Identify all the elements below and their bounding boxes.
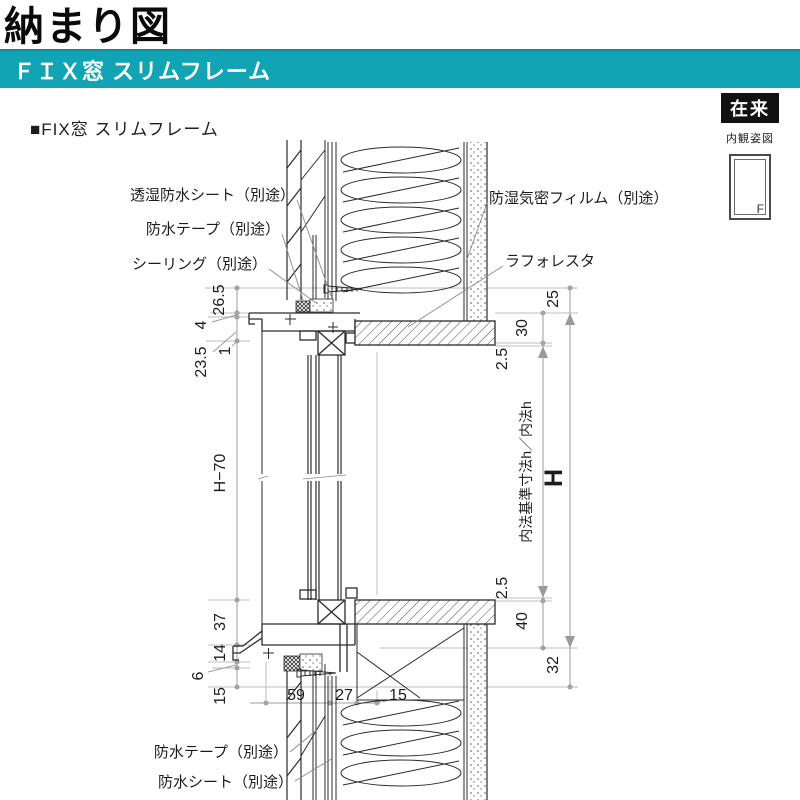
dim-27: 27 <box>335 687 353 704</box>
construction-type-badge: 在来 <box>721 93 779 123</box>
label-vapor-barrier-film: 防湿気密フィルム（別途） <box>489 190 668 207</box>
dim-15-left: 15 <box>212 687 229 705</box>
dim-59: 59 <box>287 687 305 704</box>
subsection-title: ■FIX窓 スリムフレーム <box>30 115 219 140</box>
section-drawing: 透湿防水シート（別途） 防水テープ（別途） シーリング（別途） 防湿気密フィルム… <box>0 140 800 800</box>
dimension-labels-right: 25 30 2.5 内法基準寸法h／内法h H 2.5 40 32 <box>494 290 568 674</box>
dim-h: H <box>540 469 568 487</box>
dim-23-5: 23.5 <box>193 346 210 377</box>
insulation-batt-bottom <box>341 700 461 786</box>
label-waterproof-tape-bottom: 防水テープ（別途） <box>154 744 288 761</box>
label-breathable-waterproof-sheet: 透湿防水シート（別途） <box>130 187 295 204</box>
dim-4: 4 <box>193 320 210 329</box>
dim-2-5-top: 2.5 <box>494 348 511 370</box>
dim-26-5: 26.5 <box>211 284 228 315</box>
insulation-batt-top <box>341 147 461 293</box>
window-head-frame <box>249 313 360 355</box>
label-waterproof-tape-top: 防水テープ（別途） <box>146 221 280 238</box>
dim-1: 1 <box>217 346 234 355</box>
dimension-labels-left: 26.5 4 1 23.5 H−70 37 14 6 15 <box>190 284 234 705</box>
sill-casing <box>355 600 495 624</box>
dim-h-minus-70: H−70 <box>212 454 229 493</box>
glass-upper-half <box>262 331 341 474</box>
glass-lower-half <box>262 481 341 624</box>
dim-6: 6 <box>190 671 207 680</box>
dim-2-5-bottom: 2.5 <box>494 577 511 599</box>
dim-naihou-label: 内法基準寸法h／内法h <box>518 401 534 543</box>
label-waterproof-sheet-bottom: 防水シート（別途） <box>158 774 293 791</box>
glazing-unit <box>258 331 346 624</box>
dimension-labels-bottom: 59 27 15 <box>287 687 407 704</box>
label-sealing: シーリング（別途） <box>132 256 267 273</box>
sill-framing-lumber <box>357 624 464 700</box>
vapor-barrier-film <box>464 142 467 800</box>
dim-25: 25 <box>545 290 562 308</box>
head-casing <box>355 321 495 345</box>
break-line-marks <box>258 475 346 479</box>
label-laforesta: ラフォレスタ <box>505 253 595 270</box>
dim-30: 30 <box>514 319 531 337</box>
interior-gypsum-board <box>468 142 487 800</box>
banner-label: ＦＩＸ窓 スリムフレーム <box>0 54 271 86</box>
dim-32: 32 <box>545 656 562 674</box>
dim-14: 14 <box>212 644 229 662</box>
dim-15-bottom: 15 <box>389 687 407 704</box>
dim-40: 40 <box>514 612 531 630</box>
dim-37: 37 <box>212 613 229 631</box>
sill-sealant <box>300 654 322 671</box>
section-banner: ＦＩＸ窓 スリムフレーム <box>0 49 800 88</box>
page-title: 納まり図 <box>4 0 172 52</box>
head-sealing-tape <box>296 301 310 312</box>
